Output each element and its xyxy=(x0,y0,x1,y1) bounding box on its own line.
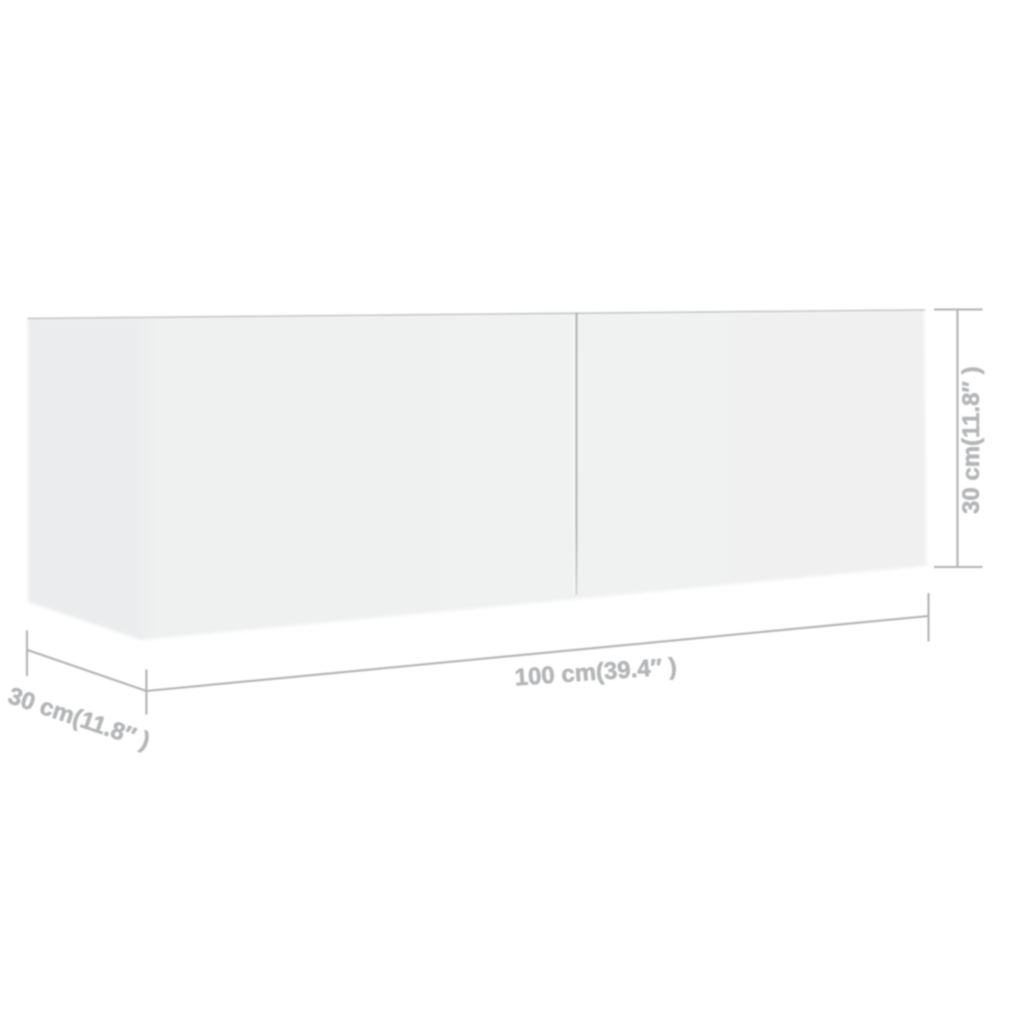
svg-text:100 cm(39.4″ ): 100 cm(39.4″ ) xyxy=(514,653,678,691)
svg-text:30 cm(11.8″ ): 30 cm(11.8″ ) xyxy=(5,682,154,754)
svg-text:30 cm(11.8″ ): 30 cm(11.8″ ) xyxy=(958,366,985,514)
